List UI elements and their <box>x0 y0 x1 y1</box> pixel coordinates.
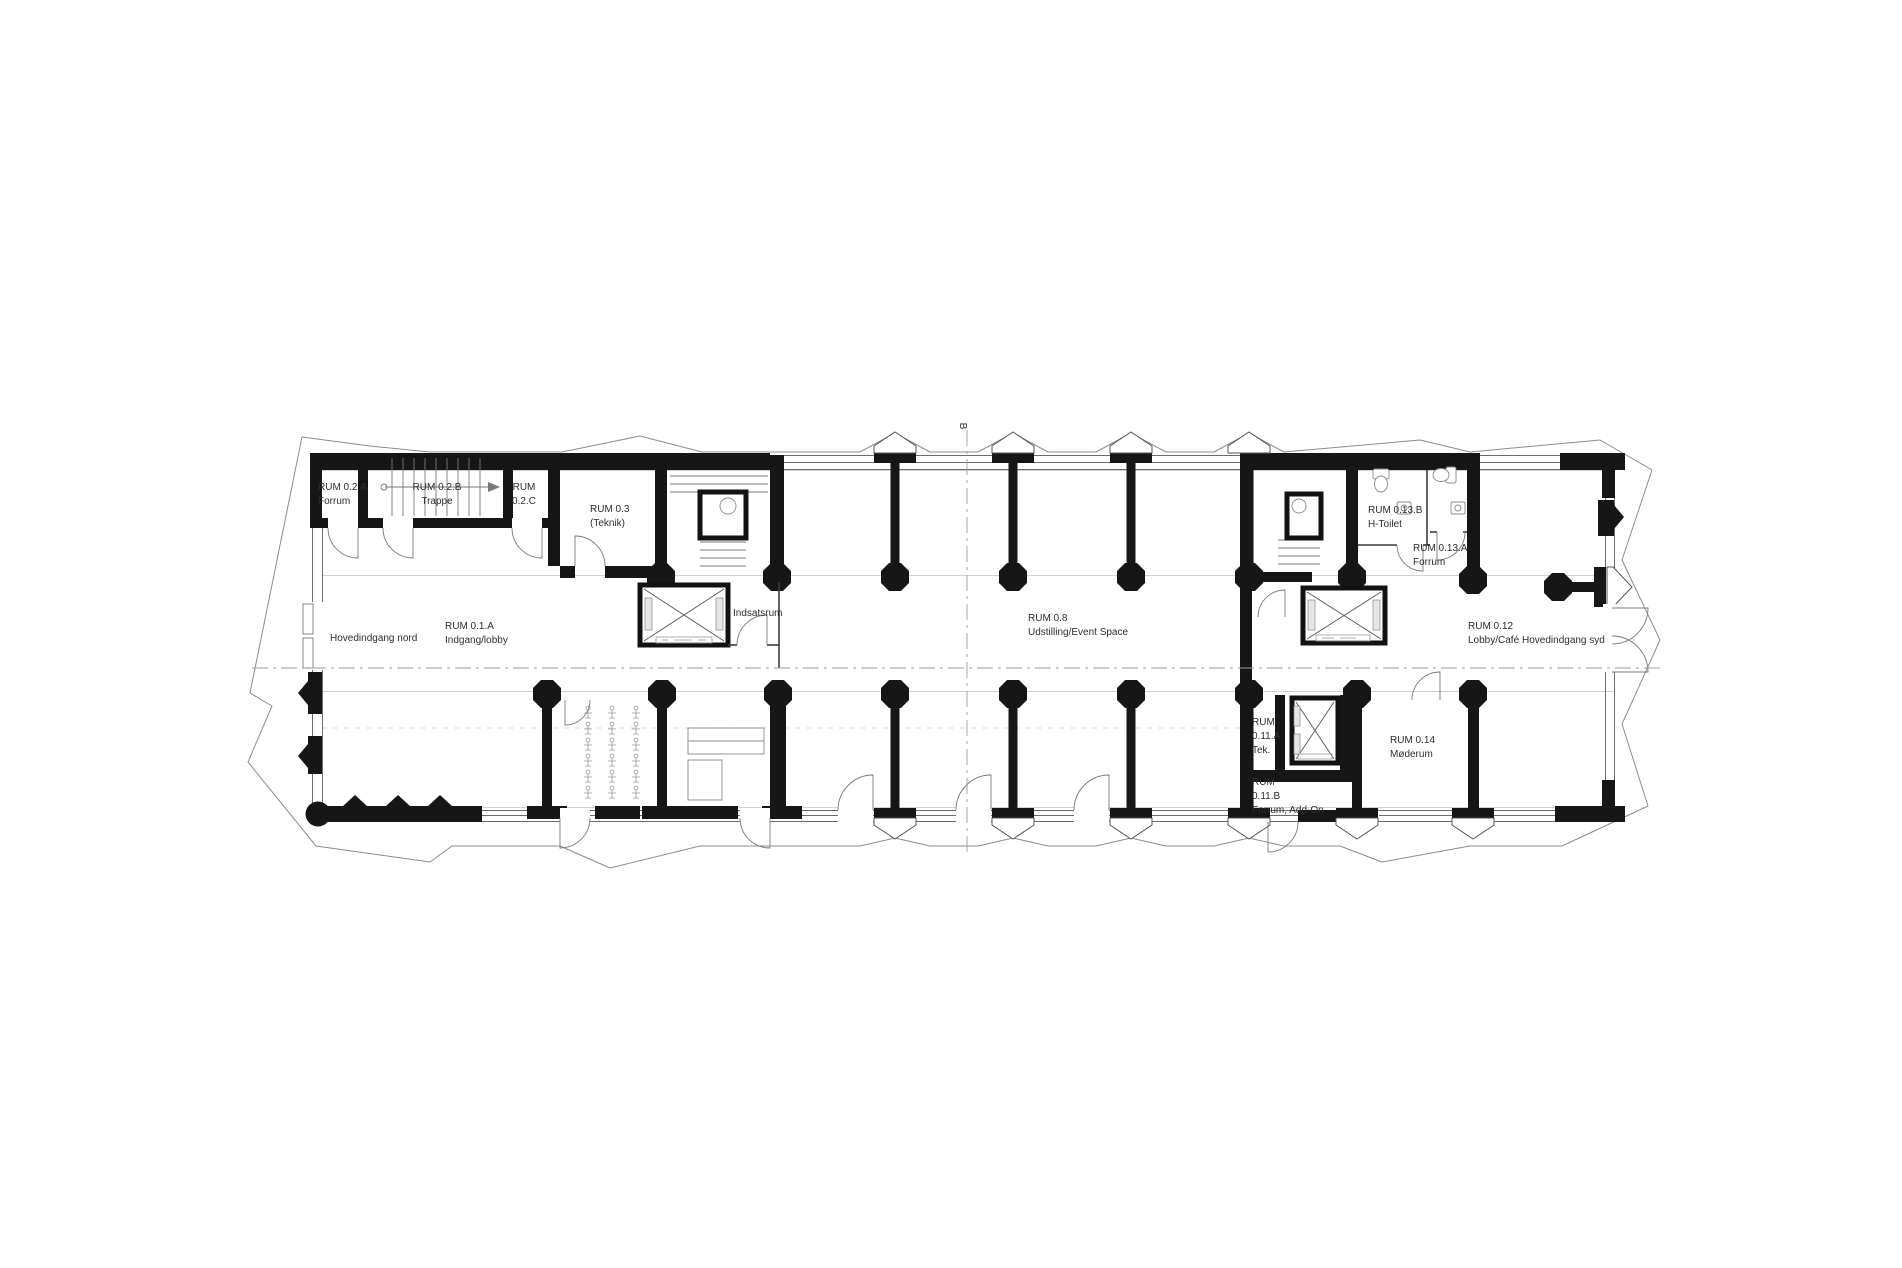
room-label-rum-03: (Teknik) <box>590 518 625 529</box>
room-label-rum-014: RUM 0.14 <box>1390 735 1435 746</box>
room-label-rum-02a: RUM 0.2.A <box>318 482 367 493</box>
doors <box>303 528 1648 852</box>
room-label-rum-011a: Tek. <box>1252 745 1270 756</box>
stair-core-left <box>670 476 768 566</box>
stair-direction-arrow <box>488 482 500 492</box>
room-label-rum-013b: H-Toilet <box>1368 519 1402 530</box>
room-label-rum-02b: Trappe <box>421 496 453 507</box>
label-hovedindgang-syd: Hovedindgang syd <box>1522 635 1605 646</box>
wardrobe-furniture <box>688 728 764 800</box>
room-label-rum-08: RUM 0.8 <box>1028 613 1068 624</box>
stair-core-right <box>1278 494 1321 564</box>
room-label-rum-08: Udstilling/Event Space <box>1028 627 1128 638</box>
floor-plan-sheet: RUM 0.2.A Forrum RUM 0.2.B Trappe RUM 0.… <box>0 0 1902 1268</box>
room-label-rum-02c: RUM <box>513 482 536 493</box>
room-label-rum-03: RUM 0.3 <box>590 504 630 515</box>
label-hovedindgang-nord: Hovedindgang nord <box>330 633 417 644</box>
interior-walls-bottom-left-rooms <box>527 694 802 819</box>
room-label-rum-012: Lobby/Café <box>1468 635 1520 646</box>
indsatsrum-partition <box>728 582 779 668</box>
elevator-left <box>640 585 728 645</box>
room-label-rum-013b: RUM 0.13.B <box>1368 505 1423 516</box>
room-label-rum-01a: RUM 0.1.A <box>445 621 494 632</box>
room-label-rum-011a: 0.11.A <box>1252 731 1280 742</box>
room-label-rum-02c: 0.2.C <box>512 496 536 507</box>
section-marker-b: B <box>957 423 968 430</box>
elevator-right-lower <box>1292 698 1338 763</box>
bike-rack-rows <box>584 706 640 798</box>
room-label-rum-01a: Indgang/lobby <box>445 635 508 646</box>
room-label-rum-012: RUM 0.12 <box>1468 621 1513 632</box>
small-shaft-left <box>700 492 746 538</box>
room-label-rum-011b: Forrum, Add-On <box>1252 805 1324 816</box>
room-label-rum-02a: Forrum <box>318 496 350 507</box>
room-label-rum-011b: RUM <box>1252 777 1275 788</box>
interior-walls-right-core <box>1240 470 1494 822</box>
room-label-rum-02b: RUM 0.2.B <box>413 482 462 493</box>
room-label-rum-013a: RUM 0.13.A <box>1413 543 1468 554</box>
room-label-rum-014: Møderum <box>1390 749 1433 760</box>
room-label-indsatsrum: Indsatsrum <box>733 608 782 619</box>
room-label-rum-011a: RUM <box>1252 717 1275 728</box>
room-label-rum-013a: Forrum <box>1413 557 1445 568</box>
elevator-right-upper <box>1303 588 1385 643</box>
floor-plan-drawing: RUM 0.2.A Forrum RUM 0.2.B Trappe RUM 0.… <box>0 0 1902 1268</box>
roof-overhang-outline <box>248 433 1660 868</box>
room-label-rum-011b: 0.11.B <box>1252 791 1280 802</box>
